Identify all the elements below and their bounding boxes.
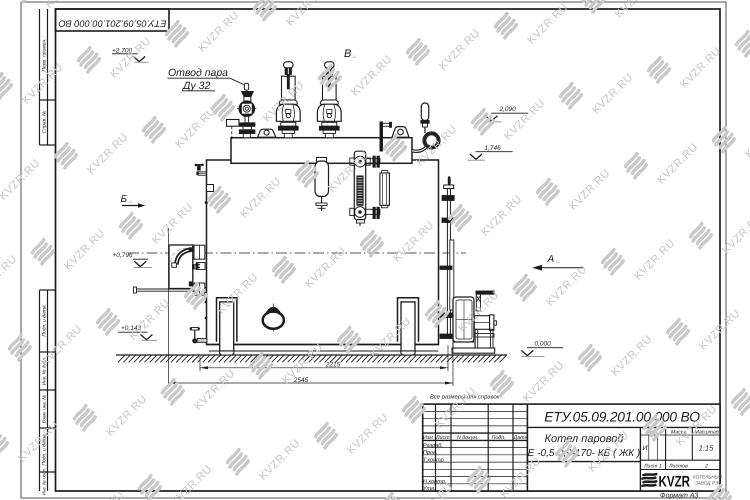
svg-text:Взам. инв. №: Взам. инв. № bbox=[42, 395, 47, 423]
svg-text:0,000: 0,000 bbox=[535, 341, 552, 348]
svg-text:Б: Б bbox=[121, 194, 128, 205]
svg-text:2,090: 2,090 bbox=[499, 106, 517, 113]
svg-text:Лист: Лист bbox=[643, 463, 658, 469]
svg-text:Дата: Дата bbox=[513, 435, 528, 441]
svg-text:Листов: Листов bbox=[668, 463, 688, 469]
svg-text:1: 1 bbox=[659, 463, 662, 469]
svg-text:1:15: 1:15 bbox=[699, 444, 714, 453]
svg-text:ЕТУ.05.09.201.00.000 ВО: ЕТУ.05.09.201.00.000 ВО bbox=[544, 410, 700, 425]
svg-text:В: В bbox=[344, 48, 351, 60]
svg-text:ЕТУ.05.09.201.00.000 ВО: ЕТУ.05.09.201.00.000 ВО bbox=[59, 19, 167, 29]
svg-text:Подп. и дата: Подп. и дата bbox=[42, 305, 48, 337]
svg-text:Е -0,5-0,9-170- КБ ( ЖК ): Е -0,5-0,9-170- КБ ( ЖК ) bbox=[528, 448, 641, 459]
svg-text:Справ. №: Справ. № bbox=[42, 110, 48, 133]
svg-text:Лист: Лист bbox=[435, 435, 450, 441]
svg-text:Изм: Изм bbox=[423, 435, 433, 441]
svg-text:А: А bbox=[547, 254, 555, 265]
svg-text:1,746: 1,746 bbox=[485, 145, 502, 152]
svg-text:Отвод пара: Отвод пара bbox=[168, 67, 228, 79]
svg-text:Т.контр.: Т.контр. bbox=[423, 457, 445, 463]
svg-text:ω: ω bbox=[353, 54, 357, 59]
svg-text:Утв.: Утв. bbox=[422, 486, 436, 492]
svg-text:Пров.: Пров. bbox=[423, 450, 438, 456]
svg-text:КОТЕЛЬНЫЙ: КОТЕЛЬНЫЙ bbox=[693, 474, 723, 480]
svg-text:Подп.: Подп. bbox=[492, 435, 506, 441]
svg-text:+0,796: +0,796 bbox=[113, 252, 133, 259]
svg-text:ЗАВОД РЭП: ЗАВОД РЭП bbox=[695, 481, 722, 486]
svg-text:Ду 32: Ду 32 bbox=[182, 80, 211, 92]
svg-text:Перв. примен.: Перв. примен. bbox=[42, 38, 48, 71]
svg-text:N докум.: N докум. bbox=[457, 435, 478, 441]
svg-text:Разраб.: Разраб. bbox=[423, 442, 443, 449]
svg-text:2215: 2215 bbox=[325, 362, 341, 369]
svg-text:2: 2 bbox=[704, 463, 708, 469]
svg-text:Формат А3: Формат А3 bbox=[660, 493, 698, 500]
svg-text:Инв. № подл.: Инв. № подл. bbox=[42, 468, 47, 495]
svg-text:KVZR: KVZR bbox=[659, 474, 691, 491]
